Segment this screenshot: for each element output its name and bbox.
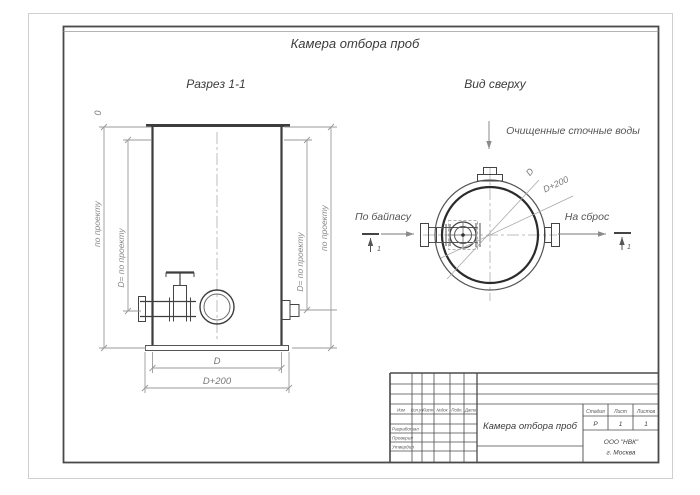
tb-stage-header: Стадия: [586, 409, 605, 415]
drawing-title: Камера отбора проб: [291, 36, 420, 51]
tb-role-developed: Разработал: [392, 427, 419, 432]
drawing-sheet: Камера отбора проб Разрез 1-1: [0, 0, 700, 495]
section-mark-left-label: 1: [377, 246, 381, 253]
tb-col-list: Лист: [422, 408, 434, 413]
tb-col-podp: Подп.: [451, 408, 462, 413]
plan-handwheel-center: [461, 233, 465, 237]
tb-sheet-header: Лист: [613, 409, 627, 415]
tb-col-izm: Изм: [397, 408, 405, 413]
elevation-zero-mark: 0: [93, 110, 103, 115]
dim-label-depth-left: по проекту: [92, 200, 102, 247]
tb-sheet-value: 1: [619, 421, 623, 428]
dim-label-depth-right: по проекту: [319, 204, 329, 251]
dim-label-width: D: [214, 356, 221, 367]
tb-col-ndok: №док: [436, 408, 448, 413]
plan-view-title: Вид сверху: [464, 77, 527, 91]
tb-col-data: Дата: [464, 408, 477, 413]
bypass-label: По байпасу: [355, 211, 412, 223]
discharge-label: На сброс: [565, 211, 610, 223]
dim-label-d-depth-left: D= по проекту: [116, 228, 126, 288]
tb-sheets-value: 1: [644, 421, 648, 428]
dim-label-base-width: D+200: [203, 376, 232, 387]
tb-doc-title: Камера отбора проб: [483, 421, 578, 432]
section-mark-right-label: 1: [627, 244, 631, 251]
tb-sheets-header: Листов: [636, 409, 656, 415]
tb-company-city: г. Москва: [606, 450, 635, 457]
section-view-title: Разрез 1-1: [186, 77, 245, 91]
tb-role-approved: Утвердил: [392, 445, 414, 450]
tb-company-name: ООО "НВК": [604, 439, 639, 446]
dim-label-d-depth-right: D= по проекту: [295, 232, 305, 292]
tb-role-checked: Проверил: [392, 436, 413, 441]
inflow-label: Очищенные сточные воды: [506, 125, 640, 137]
tb-stage-value: Р: [593, 421, 598, 428]
